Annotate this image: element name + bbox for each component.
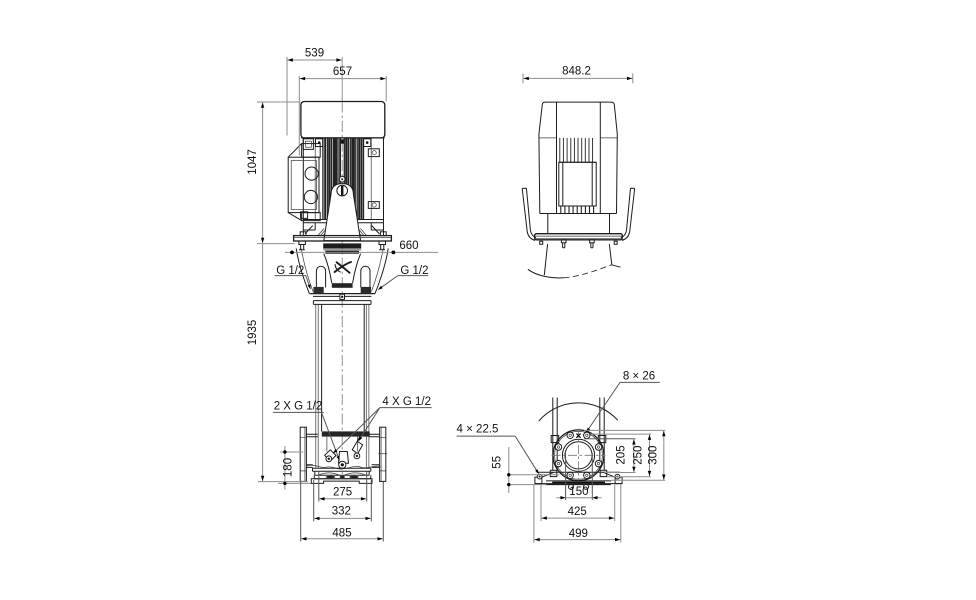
svg-text:300: 300 [648,446,660,465]
svg-text:205: 205 [616,445,628,464]
svg-text:499: 499 [569,528,588,540]
svg-text:8 × 26: 8 × 26 [623,371,655,383]
svg-text:332: 332 [332,505,351,517]
svg-text:150: 150 [569,486,588,498]
svg-text:425: 425 [568,506,587,518]
svg-text:G 1/2: G 1/2 [400,265,428,277]
svg-text:2 X G 1/2: 2 X G 1/2 [274,401,323,413]
svg-text:4 × 22.5: 4 × 22.5 [457,424,499,436]
svg-text:660: 660 [399,240,418,252]
svg-text:848.2: 848.2 [562,65,591,77]
svg-text:G 1/2: G 1/2 [276,265,304,277]
svg-text:485: 485 [332,528,351,540]
svg-text:275: 275 [333,487,352,499]
svg-text:1935: 1935 [247,320,259,346]
svg-text:539: 539 [305,47,324,59]
svg-text:4 X G 1/2: 4 X G 1/2 [382,396,431,408]
svg-text:1047: 1047 [247,149,259,175]
svg-text:657: 657 [333,66,352,78]
svg-text:180: 180 [282,458,294,477]
svg-text:250: 250 [632,446,644,465]
svg-text:55: 55 [492,456,504,469]
